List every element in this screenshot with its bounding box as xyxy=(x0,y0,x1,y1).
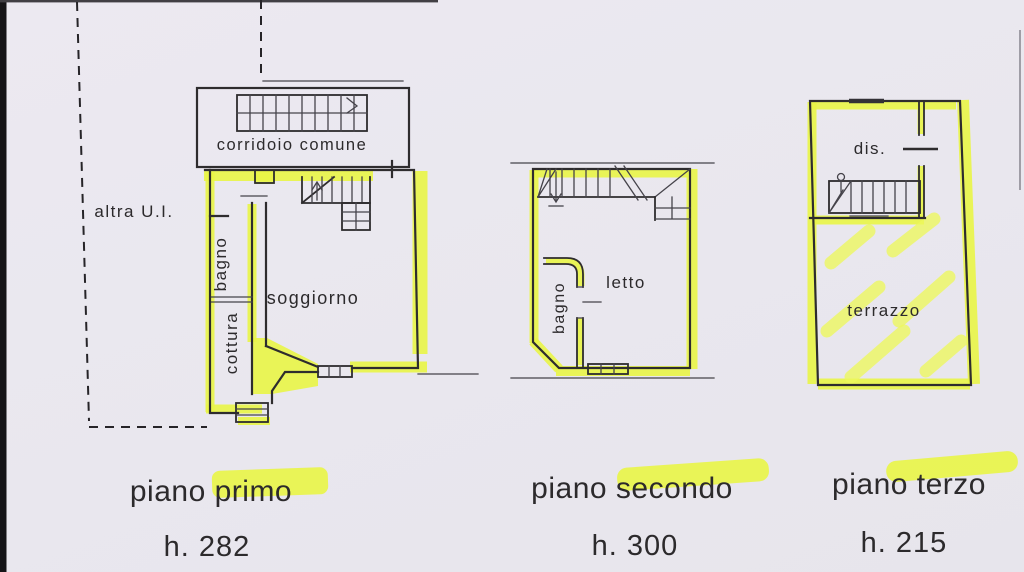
stair-arrow-icon xyxy=(347,98,357,113)
plan-title-piano-secondo: piano secondo xyxy=(531,472,733,505)
plan-piano-primo: corridoio comune xyxy=(197,88,478,422)
scan-edge-top xyxy=(0,0,438,2)
room-label-bagno: bagno xyxy=(211,237,230,292)
plan-piano-terzo: dis. terrazzo xyxy=(810,100,974,385)
caption-piano-primo: piano primo h. 282 xyxy=(130,467,329,563)
plan-title-piano-terzo: piano terzo xyxy=(832,468,986,501)
plan-title-piano-primo: piano primo xyxy=(130,475,292,508)
room-label-terrazzo: terrazzo xyxy=(847,301,920,320)
plan-height-piano-primo: h. 282 xyxy=(164,531,251,563)
caption-piano-terzo: piano terzo h. 215 xyxy=(832,450,1019,559)
corridor-outline xyxy=(197,88,409,167)
scan-edge-left xyxy=(0,0,7,572)
staircase-corridor xyxy=(237,95,367,131)
label-altra-ui: altra U.I. xyxy=(94,202,173,221)
room-label-soggiorno: soggiorno xyxy=(267,288,360,308)
label-corridoio-comune: corridoio comune xyxy=(217,136,368,154)
door-symbol xyxy=(211,297,252,302)
plan-piano-secondo: bagno letto xyxy=(511,163,714,378)
floorplan-drawing: altra U.I. corridoio comune xyxy=(0,0,1024,572)
staircase-internal xyxy=(302,177,370,230)
room-label-cottura: cottura xyxy=(222,312,241,374)
room-label-dis: dis. xyxy=(854,139,886,158)
caption-piano-secondo: piano secondo h. 300 xyxy=(531,458,769,562)
window-symbol xyxy=(318,366,352,377)
plan-height-piano-secondo: h. 300 xyxy=(592,530,679,562)
terrazzo-highlighter-strokes xyxy=(827,219,961,377)
plan-height-piano-terzo: h. 215 xyxy=(861,527,948,559)
staircase xyxy=(829,174,920,217)
room-label-bagno: bagno xyxy=(551,282,568,334)
stair-start-icon xyxy=(838,174,845,181)
room-label-letto: letto xyxy=(606,273,646,292)
scanned-floorplan-sheet: altra U.I. corridoio comune xyxy=(0,0,1024,572)
highlighter-walls xyxy=(533,169,692,371)
